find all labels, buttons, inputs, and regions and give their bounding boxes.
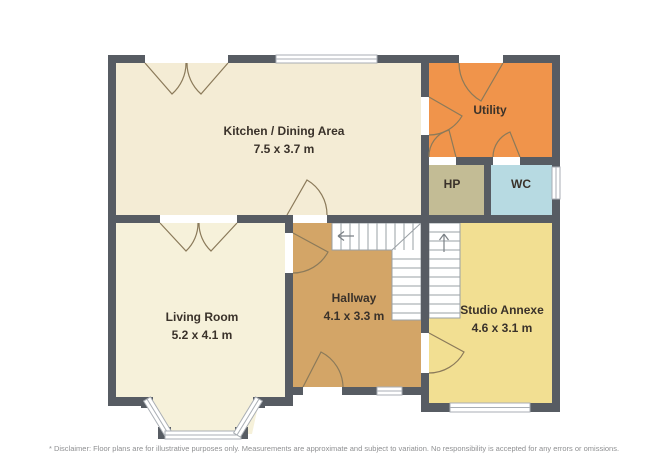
floorplan-canvas: Kitchen / Dining Area 7.5 x 3.7 m Utilit…: [0, 0, 668, 472]
utility-label: Utility: [473, 101, 506, 119]
disclaimer-text: * Disclaimer: Floor plans are for illust…: [49, 444, 619, 453]
hallway-label: Hallway 4.1 x 3.3 m: [324, 289, 385, 325]
bay-window-front: [165, 431, 241, 439]
room-name: Utility: [473, 101, 506, 119]
hallway-window: [377, 387, 402, 395]
room-name: Kitchen / Dining Area: [224, 122, 345, 140]
kitchen-label: Kitchen / Dining Area 7.5 x 3.7 m: [224, 122, 345, 158]
wc-label: WC: [511, 175, 531, 193]
room-dims: 5.2 x 4.1 m: [166, 326, 239, 344]
wc-window: [552, 167, 560, 199]
room-dims: 4.1 x 3.3 m: [324, 307, 385, 325]
living-room-label: Living Room 5.2 x 4.1 m: [166, 308, 239, 344]
room-name: HP: [444, 175, 461, 193]
studio-window: [450, 403, 530, 412]
floorplan-drawing: [0, 0, 668, 472]
hp-label: HP: [444, 175, 461, 193]
room-dims: 4.6 x 3.1 m: [460, 319, 544, 337]
room-name: Living Room: [166, 308, 239, 326]
kitchen-window: [276, 55, 377, 63]
room-name: Hallway: [324, 289, 385, 307]
room-dims: 7.5 x 3.7 m: [224, 140, 345, 158]
studio-annexe-label: Studio Annexe 4.6 x 3.1 m: [460, 301, 544, 337]
room-name: WC: [511, 175, 531, 193]
room-name: Studio Annexe: [460, 301, 544, 319]
studio-staircase: [429, 223, 460, 318]
